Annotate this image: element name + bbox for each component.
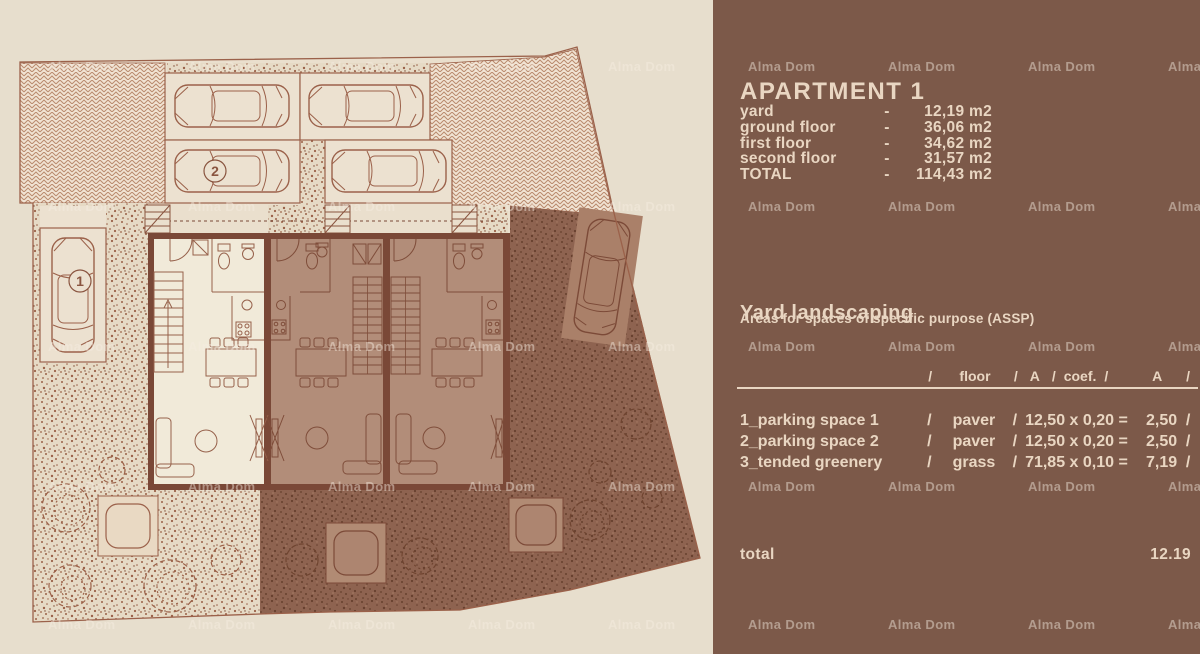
header-sep: / [922, 368, 938, 384]
area-row-total: TOTAL - 114,43 m2 [740, 167, 992, 183]
area-label: first floor [740, 136, 880, 152]
area-value: 31,57 m2 [894, 151, 992, 167]
row-sep: / [1179, 452, 1197, 473]
parking-space-2-label: 2 [211, 163, 219, 179]
terrace-2 [326, 523, 386, 583]
row-floor: paver [937, 431, 1010, 452]
landscaping-rows: 1_parking space 1 / paver / 12,50 x 0,20… [740, 410, 1197, 473]
area-value: 12,19 m2 [894, 104, 992, 120]
header-mid: / A / coef. / [1012, 368, 1135, 384]
row-result: 2,50 [1134, 410, 1180, 431]
header-a: A [1030, 368, 1040, 384]
area-label: yard [740, 104, 880, 120]
row-sep: / [921, 431, 937, 452]
row-mid: / 71,85 x 0,10 = [1011, 452, 1134, 473]
entry-stairs-2 [325, 205, 350, 233]
parking-space-1-label: 1 [76, 273, 84, 289]
row-floor: paver [937, 410, 1010, 431]
entry-stairs-3 [452, 205, 477, 233]
area-dash: - [880, 151, 894, 167]
area-value: 36,06 m2 [894, 120, 992, 136]
area-label: second floor [740, 151, 880, 167]
area-row-first-floor: first floor - 34,62 m2 [740, 136, 992, 152]
row-name: 2_parking space 2 [740, 431, 921, 452]
area-label: ground floor [740, 120, 880, 136]
row-name: 1_parking space 1 [740, 410, 921, 431]
header-sep: / [1104, 368, 1108, 384]
header-coef: coef. [1064, 368, 1097, 384]
landscaping-subtitle: Areas for spaces of specific purpose (AS… [740, 311, 1034, 326]
row-sep: / [1013, 431, 1017, 452]
area-dash: - [880, 104, 894, 120]
row-calc: 71,85 x 0,10 = [1025, 452, 1128, 473]
row-result: 7,19 [1134, 452, 1180, 473]
row-floor: grass [937, 452, 1010, 473]
row-sep: / [1013, 410, 1017, 431]
row-calc: 12,50 x 0,20 = [1025, 410, 1128, 431]
terrace-1 [98, 496, 158, 556]
total-value: 12.19 [1150, 546, 1191, 564]
row-sep: / [921, 410, 937, 431]
site-plan: 1 2 [0, 0, 713, 654]
area-dash: - [880, 120, 894, 136]
header-name [740, 368, 922, 384]
landscaping-row-1: 1_parking space 1 / paver / 12,50 x 0,20… [740, 410, 1197, 431]
building [148, 233, 510, 490]
row-sep: / [1179, 431, 1197, 452]
area-value: 34,62 m2 [894, 136, 992, 152]
total-row: total 12.19 [740, 546, 1191, 564]
row-name: 3_tended greenery [740, 452, 921, 473]
row-sep: / [1013, 452, 1017, 473]
row-calc: 12,50 x 0,20 = [1025, 431, 1128, 452]
area-label: TOTAL [740, 167, 880, 183]
terrace-3 [509, 498, 563, 552]
row-sep: / [921, 452, 937, 473]
table-divider [737, 387, 1198, 389]
total-label: total [740, 546, 775, 564]
apartment-title: APARTMENT 1 [740, 78, 925, 106]
area-row-yard: yard - 12,19 m2 [740, 104, 992, 120]
page: 1 2 [0, 0, 1200, 654]
area-row-ground-floor: ground floor - 36,06 m2 [740, 120, 992, 136]
entry-stairs-1 [145, 205, 170, 233]
row-mid: / 12,50 x 0,20 = [1011, 410, 1134, 431]
header-floor: floor [938, 368, 1012, 384]
area-dash: - [880, 167, 894, 183]
row-result: 2,50 [1134, 431, 1180, 452]
area-dash: - [880, 136, 894, 152]
row-sep: / [1179, 410, 1197, 431]
area-row-second-floor: second floor - 31,57 m2 [740, 151, 992, 167]
header-sep: / [1052, 368, 1056, 384]
info-panel: APARTMENT 1 yard - 12,19 m2 ground floor… [713, 0, 1200, 654]
row-mid: / 12,50 x 0,20 = [1011, 431, 1134, 452]
landscaping-row-2: 2_parking space 2 / paver / 12,50 x 0,20… [740, 431, 1197, 452]
landscaping-table-header: / floor / A / coef. / A / [740, 368, 1197, 384]
header-a2: A [1135, 368, 1179, 384]
area-value: 114,43 m2 [894, 167, 992, 183]
landscaping-row-3: 3_tended greenery / grass / 71,85 x 0,10… [740, 452, 1197, 473]
header-sep: / [1014, 368, 1018, 384]
area-list: yard - 12,19 m2 ground floor - 36,06 m2 … [740, 104, 992, 183]
header-sep: / [1179, 368, 1197, 384]
